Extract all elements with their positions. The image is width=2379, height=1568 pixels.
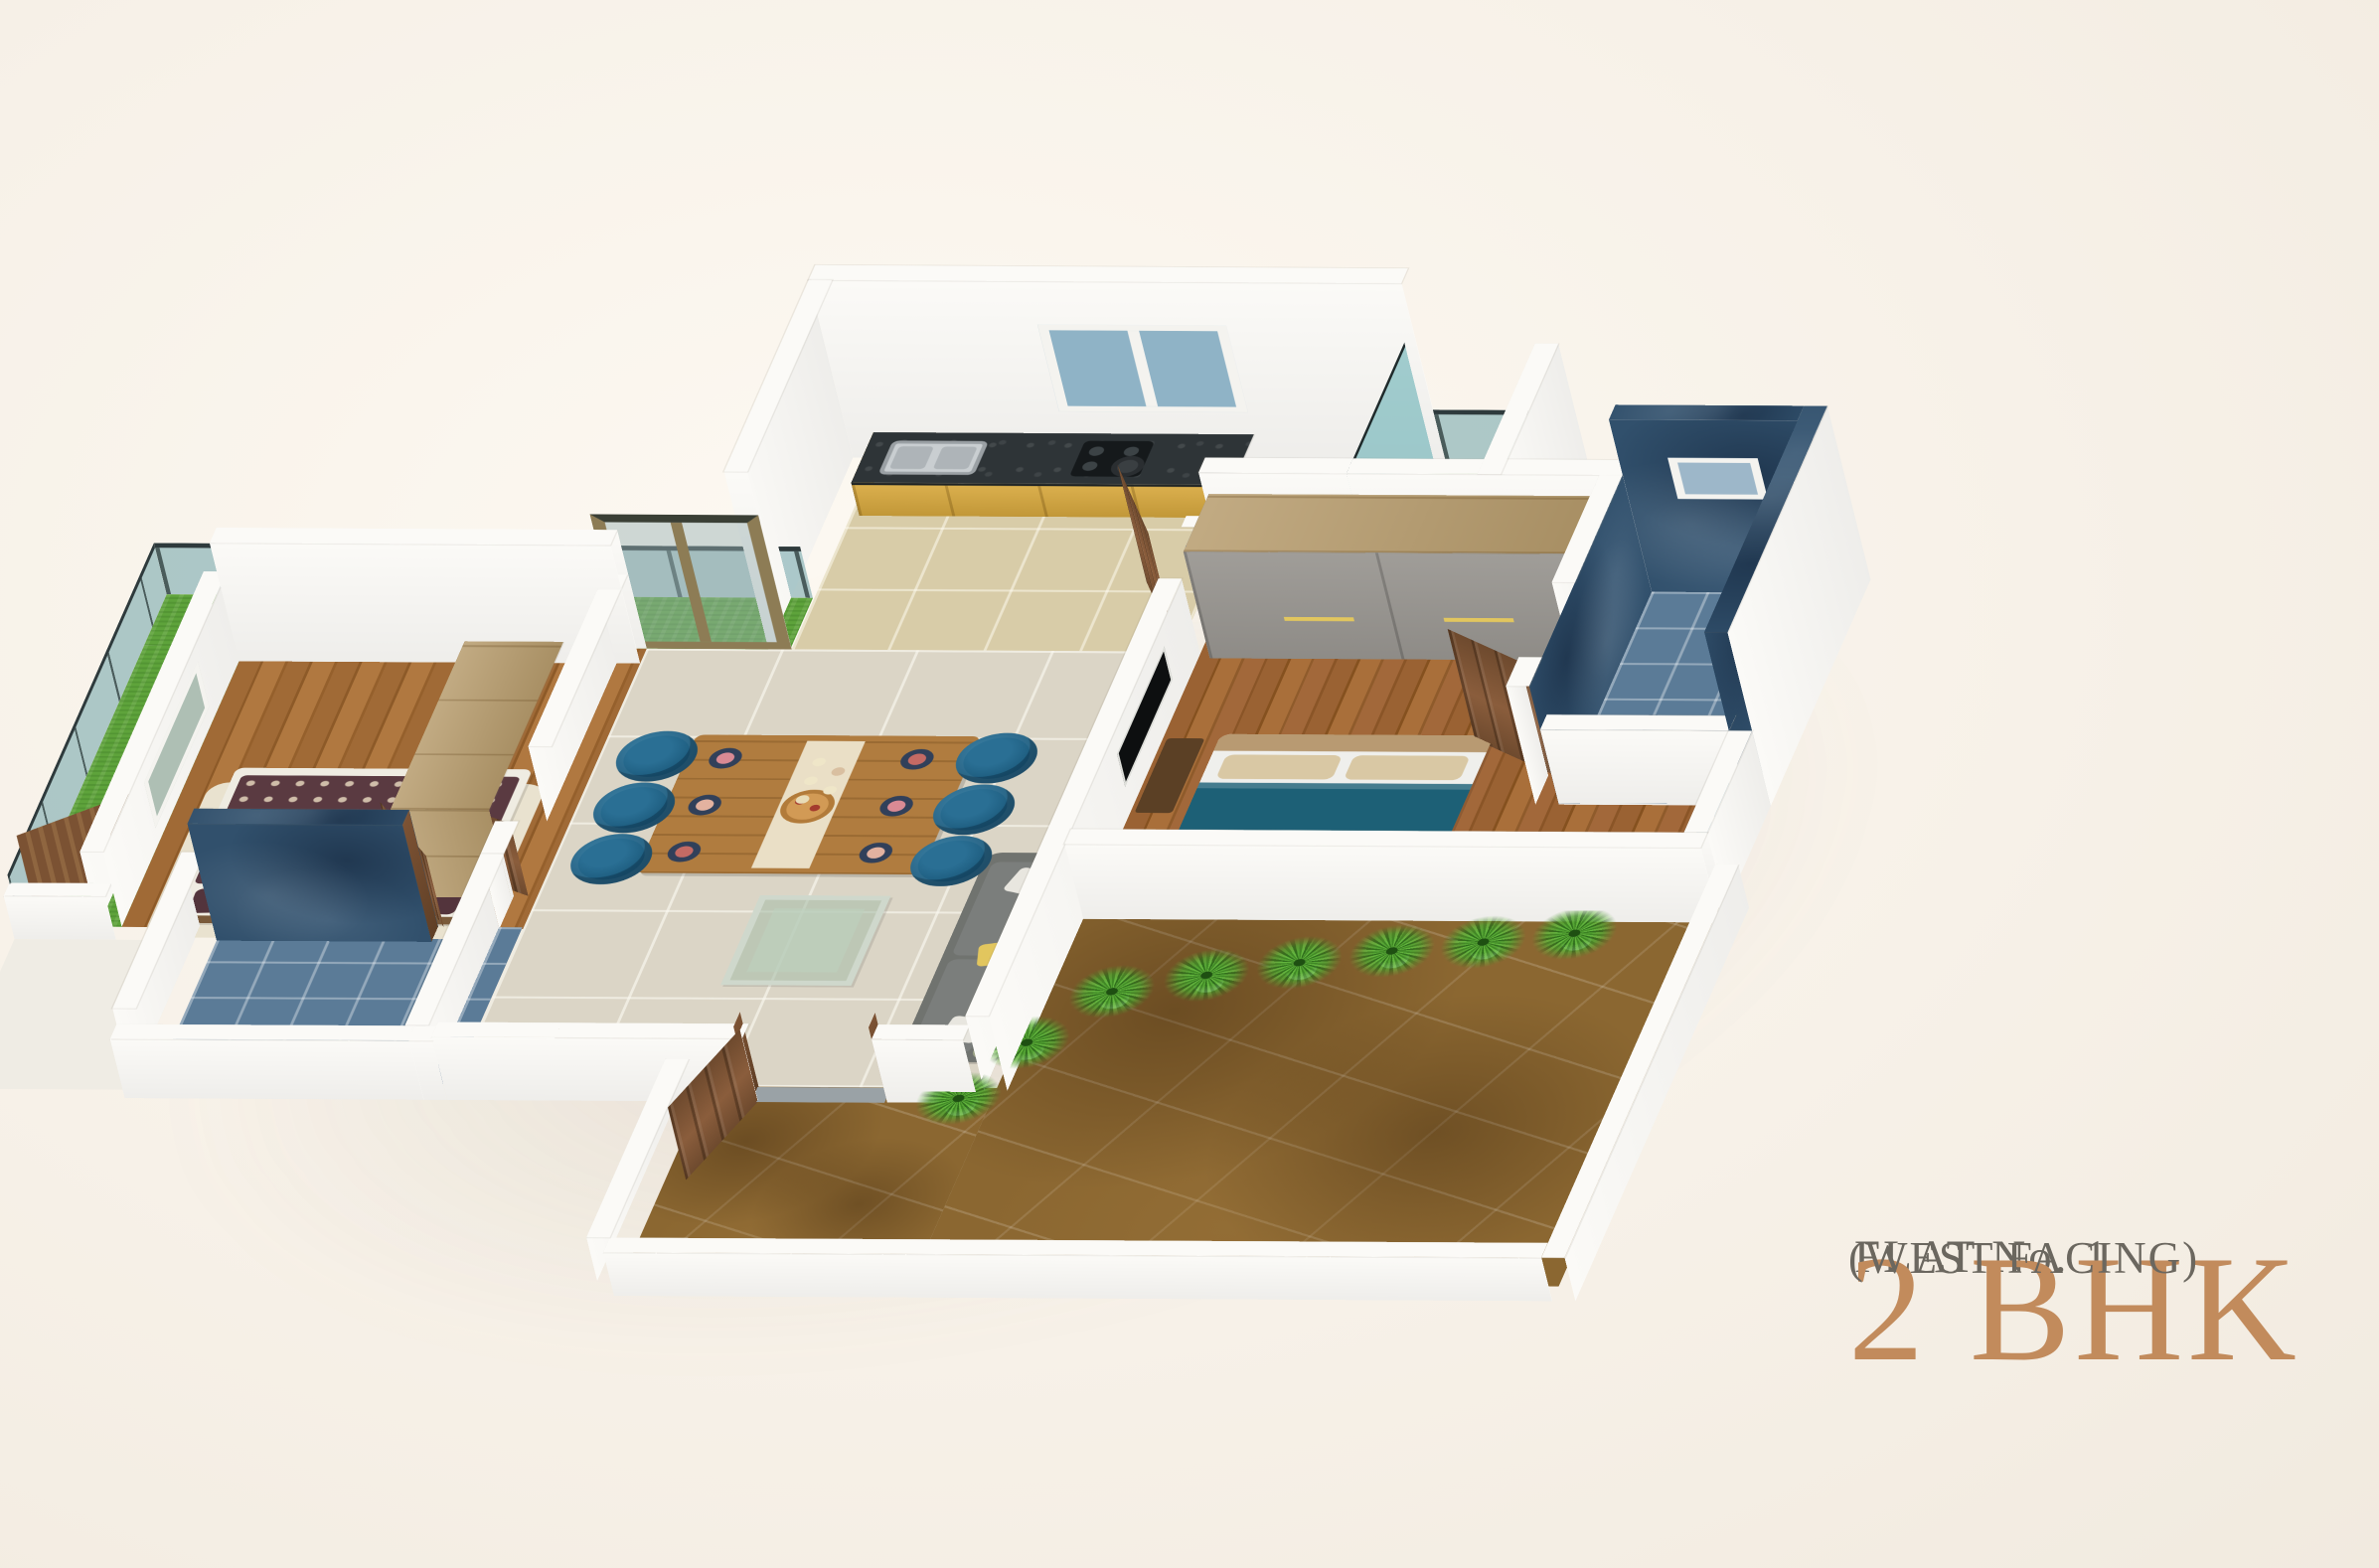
- wardrobe-handle: [1444, 618, 1514, 622]
- facing-label: (WEST FACING): [1848, 1232, 2199, 1284]
- kitchen-counter-top: [851, 432, 1253, 485]
- hob-burner: [1122, 447, 1141, 456]
- wall-bathroom2-accent-face-bath: [188, 824, 432, 943]
- bed-master-pillow: [1344, 755, 1471, 780]
- wall-bathroom2-accent-cap: [188, 809, 409, 825]
- kitchen-window: [1037, 325, 1248, 413]
- wardrobe-front: [1184, 551, 1594, 660]
- kitchen-sink-bowl2: [933, 446, 978, 469]
- wall-bedroom1-front-face-terrace: [1064, 844, 1719, 922]
- kitchen-cabinet-front: [851, 483, 1239, 519]
- wall-living-front-cap-a: [431, 1021, 748, 1038]
- kitchen-sink-bowl: [889, 446, 934, 469]
- parapet-terrace-bottom-face: [603, 1252, 1552, 1301]
- bed-master-pillow: [1215, 754, 1343, 779]
- wall-living-front-cap-b: [872, 1024, 970, 1040]
- coffee-table-glass-inner: [746, 908, 865, 972]
- pizza-topping: [794, 798, 807, 805]
- wardrobe-handle: [1284, 617, 1354, 621]
- hob-burner: [1087, 446, 1106, 455]
- floor-plan-canvas: FLAT No. 1 2 BHK (WEST FACING): [0, 0, 2379, 1568]
- kitchen-sink: [878, 440, 989, 474]
- wall-bathroom1-top-cap: [1609, 404, 1805, 420]
- bed-master-headboard: [1213, 734, 1494, 752]
- frying-pan: [1107, 456, 1148, 477]
- wall-bathroom1-bottom-cap: [1540, 714, 1736, 730]
- entrance-threshold: [751, 1087, 891, 1103]
- hob-burner: [1080, 461, 1099, 470]
- parapet-bottom-left-face: [4, 895, 116, 939]
- wardrobe-top: [1184, 494, 1593, 554]
- pizza-topping: [808, 805, 821, 812]
- isometric-scene: [0, 454, 1942, 1287]
- kitchen-window-mullion: [1127, 331, 1158, 406]
- bathroom1-vent-window: [1667, 458, 1768, 500]
- kitchen-hob: [1069, 441, 1155, 477]
- wall-bathroom2-bottom-face: [110, 1039, 447, 1100]
- parapet-bottom-left-cap: [4, 882, 111, 896]
